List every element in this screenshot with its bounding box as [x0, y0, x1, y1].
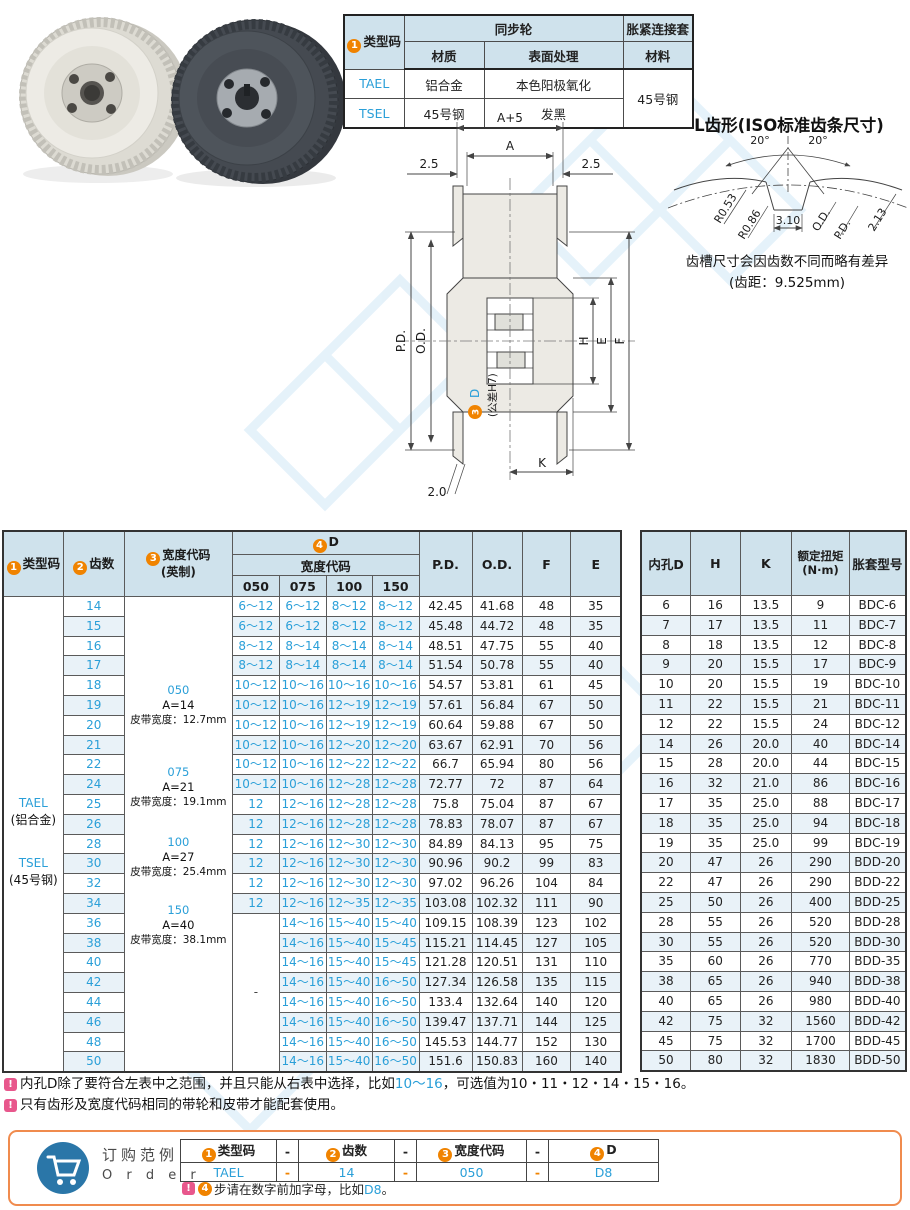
- teeth-cell: 50: [63, 1052, 124, 1072]
- header-teeth: 2齿数: [63, 531, 124, 597]
- r2-label: R0.86: [736, 207, 764, 241]
- d150-cell: 15～45: [372, 933, 419, 953]
- header-pd: P.D.: [419, 531, 472, 597]
- sleeve-model-cell: BDC-6: [849, 596, 906, 616]
- spec-row: 301212～1612～3012～3090.9690.29983: [3, 854, 621, 874]
- spec-table-right: 内孔D H K 额定扭矩(N·m) 胀套型号 61613.59BDC-67171…: [640, 530, 907, 1072]
- pd-cell: 121.28: [419, 953, 472, 973]
- note-icon: !: [182, 1182, 195, 1195]
- d075-cell: 8～14: [279, 656, 326, 676]
- teeth-cell: 36: [63, 913, 124, 933]
- d150-cell: 8～14: [372, 636, 419, 656]
- sleeve-model-cell: BDD-40: [849, 991, 906, 1011]
- d100-cell: 15～40: [326, 1012, 372, 1032]
- d075-cell: 12～16: [279, 854, 326, 874]
- h-cell: 28: [691, 754, 741, 774]
- f-cell: 127: [522, 933, 571, 953]
- d050-cell: 10～12: [232, 755, 279, 775]
- sleeve-row: 305526520BDD-30: [641, 932, 906, 952]
- pulley-aluminum: [20, 18, 188, 176]
- pd-cell: 45.48: [419, 616, 472, 636]
- sleeve-row: 163221.086BDC-16: [641, 774, 906, 794]
- e-cell: 115: [571, 973, 621, 993]
- tael-material: 铝合金: [404, 69, 484, 99]
- bore-cell: 14: [641, 734, 691, 754]
- material-subheader: 材质: [404, 42, 484, 70]
- bore-cell: 35: [641, 952, 691, 972]
- tooth-note-1: 齿槽尺寸会因齿数不同而略有差异: [664, 250, 910, 270]
- torque-cell: 44: [792, 754, 850, 774]
- d075-cell: 12～16: [279, 834, 326, 854]
- footnote-2: ! 只有齿形及宽度代码相同的带轮和皮带才能配套使用。: [4, 1095, 694, 1116]
- bore-cell: 20: [641, 853, 691, 873]
- h-cell: 20: [691, 675, 741, 695]
- tael-surface: 本色阳极氧化: [484, 69, 623, 99]
- d150-cell: 8～12: [372, 597, 419, 617]
- sleeve-row: 224726290BDD-22: [641, 873, 906, 893]
- h-cell: 20: [691, 655, 741, 675]
- bore-cell: 50: [641, 1051, 691, 1071]
- d050-merged-dash-cell: -: [232, 913, 279, 1072]
- d050-cell: 6～12: [232, 597, 279, 617]
- d075-cell: 8～14: [279, 636, 326, 656]
- d100-cell: 8～12: [326, 616, 372, 636]
- f-cell: 67: [522, 715, 571, 735]
- d075-cell: 6～12: [279, 616, 326, 636]
- h-cell: 65: [691, 972, 741, 992]
- bore-cell: 10: [641, 675, 691, 695]
- order-v4: D8: [549, 1163, 659, 1182]
- torque-cell: 520: [792, 912, 850, 932]
- h-cell: 47: [691, 853, 741, 873]
- spec-row: 4014～1615～4015～45121.28120.51131110: [3, 953, 621, 973]
- od-cell: 90.2: [472, 854, 522, 874]
- bore-cell: 42: [641, 1011, 691, 1031]
- f-cell: 48: [522, 616, 571, 636]
- k-cell: 20.0: [740, 754, 792, 774]
- sleeve-row: 122215.524BDC-12: [641, 714, 906, 734]
- order-table: 1类型码 - 2齿数 - 3宽度代码 - 4D TAEL - 14 - 050 …: [180, 1139, 659, 1182]
- table-row: TAEL 铝合金 本色阳极氧化 45号钢: [344, 69, 693, 99]
- sleeve-model-cell: BDC-11: [849, 694, 906, 714]
- d100-cell: 12～30: [326, 854, 372, 874]
- torque-cell: 9: [792, 596, 850, 616]
- sleeve-material-subheader: 材料: [623, 42, 693, 70]
- d100-cell: 15～40: [326, 992, 372, 1012]
- f-cell: 67: [522, 695, 571, 715]
- e-cell: 140: [571, 1052, 621, 1072]
- od-cell: 120.51: [472, 953, 522, 973]
- d100-cell: 8～14: [326, 636, 372, 656]
- f-cell: 144: [522, 1012, 571, 1032]
- teeth-cell: 48: [63, 1032, 124, 1052]
- sleeve-model-cell: BDC-7: [849, 615, 906, 635]
- d100-cell: 12～20: [326, 735, 372, 755]
- f-cell: 55: [522, 656, 571, 676]
- h-cell: 22: [691, 694, 741, 714]
- header-bore: 内孔D: [641, 531, 691, 596]
- d075-cell: 10～16: [279, 695, 326, 715]
- d075-cell: 12～16: [279, 814, 326, 834]
- f-cell: 131: [522, 953, 571, 973]
- spec-row: 2410～1210～1612～2812～2872.77728764: [3, 775, 621, 795]
- k-cell: 26: [740, 853, 792, 873]
- spec-row: 168～128～148～148～1448.5147.755540: [3, 636, 621, 656]
- sleeve-row: 152820.044BDC-15: [641, 754, 906, 774]
- k-cell: 15.5: [740, 655, 792, 675]
- h-cell: 35: [691, 833, 741, 853]
- spec-row: 321212～1612～3012～3097.0296.2610484: [3, 874, 621, 894]
- torque-cell: 1830: [792, 1051, 850, 1071]
- h-cell: 75: [691, 1031, 741, 1051]
- e-cell: 110: [571, 953, 621, 973]
- bore-cell: 22: [641, 873, 691, 893]
- od-cell: 41.68: [472, 597, 522, 617]
- spec-row: 178～128～148～148～1451.5450.785540: [3, 656, 621, 676]
- torque-cell: 40: [792, 734, 850, 754]
- torque-cell: 980: [792, 991, 850, 1011]
- od-cell: 56.84: [472, 695, 522, 715]
- teeth-cell: 22: [63, 755, 124, 775]
- k-cell: 13.5: [740, 615, 792, 635]
- dim-a5-label: A+5: [497, 111, 523, 125]
- pd-cell: 48.51: [419, 636, 472, 656]
- svg-text:(公差H7): (公差H7): [486, 373, 499, 417]
- d150-cell: 16～50: [372, 1012, 419, 1032]
- tooth-note-2: (齿距：9.525mm): [664, 271, 910, 291]
- torque-cell: 24: [792, 714, 850, 734]
- d150-cell: 12～19: [372, 695, 419, 715]
- width-block-150: 150A=40皮带宽度：38.1mm: [125, 903, 232, 948]
- sleeve-row: 81813.512BDC-8: [641, 635, 906, 655]
- header-075: 075: [279, 576, 326, 597]
- bore-cell: 15: [641, 754, 691, 774]
- pd-cell: 60.64: [419, 715, 472, 735]
- k-cell: 26: [740, 932, 792, 952]
- h-cell: 47: [691, 873, 741, 893]
- pd-cell: 42.45: [419, 597, 472, 617]
- d075-cell: 10～16: [279, 715, 326, 735]
- torque-cell: 400: [792, 892, 850, 912]
- bore-cell: 28: [641, 912, 691, 932]
- order-h4: 4D: [549, 1140, 659, 1163]
- torque-cell: 520: [792, 932, 850, 952]
- k-cell: 32: [740, 1051, 792, 1071]
- h-cell: 35: [691, 813, 741, 833]
- sleeve-row: 193525.099BDC-19: [641, 833, 906, 853]
- e-cell: 84: [571, 874, 621, 894]
- d075-cell: 6～12: [279, 597, 326, 617]
- sleeve-row: 102015.519BDC-10: [641, 675, 906, 695]
- d050-cell: 8～12: [232, 656, 279, 676]
- order-h1: 1类型码: [181, 1140, 277, 1163]
- sleeve-model-cell: BDD-25: [849, 892, 906, 912]
- pd-cell: 75.8: [419, 794, 472, 814]
- d050-cell: 12: [232, 794, 279, 814]
- e-cell: 40: [571, 656, 621, 676]
- bore-cell: 12: [641, 714, 691, 734]
- note-icon: !: [4, 1078, 17, 1091]
- sleeve-model-cell: BDD-22: [849, 873, 906, 893]
- sleeve-model-cell: BDD-35: [849, 952, 906, 972]
- width-block-100: 100A=27皮带宽度：25.4mm: [125, 835, 232, 880]
- e-cell: 40: [571, 636, 621, 656]
- d150-cell: 12～19: [372, 715, 419, 735]
- pd-cell: 84.89: [419, 834, 472, 854]
- torque-cell: 86: [792, 774, 850, 794]
- sleeve-row: 285526520BDD-28: [641, 912, 906, 932]
- k-cell: 26: [740, 952, 792, 972]
- torque-cell: 17: [792, 655, 850, 675]
- d150-cell: 16～50: [372, 1052, 419, 1072]
- spec-row: 341212～1612～3512～35103.08102.3211190: [3, 893, 621, 913]
- k-cell: 25.0: [740, 793, 792, 813]
- od-cell: 78.07: [472, 814, 522, 834]
- torque-cell: 11: [792, 615, 850, 635]
- h-cell: 55: [691, 932, 741, 952]
- k-cell: 26: [740, 972, 792, 992]
- f-cell: 61: [522, 676, 571, 696]
- badge-4: 4: [313, 539, 327, 553]
- f-cell: 111: [522, 893, 571, 913]
- d150-cell: 12～28: [372, 814, 419, 834]
- k-cell: 25.0: [740, 813, 792, 833]
- f-cell: 104: [522, 874, 571, 894]
- bore-cell: 40: [641, 991, 691, 1011]
- d050-cell: 10～12: [232, 775, 279, 795]
- od-cell: 102.32: [472, 893, 522, 913]
- d150-cell: 16～50: [372, 973, 419, 993]
- f-cell: 87: [522, 794, 571, 814]
- h-cell: 50: [691, 892, 741, 912]
- teeth-cell: 15: [63, 616, 124, 636]
- e-cell: 125: [571, 1012, 621, 1032]
- header-f: F: [522, 531, 571, 597]
- sleeve-model-cell: BDD-50: [849, 1051, 906, 1071]
- catalog-page: { "colors":{"blue":"#2a9fd8","orange":"#…: [0, 0, 910, 1210]
- od-cell: 144.77: [472, 1032, 522, 1052]
- pd-cell: 127.34: [419, 973, 472, 993]
- dim-20-label: 2.0: [427, 485, 446, 499]
- d150-cell: 12～20: [372, 735, 419, 755]
- e-cell: 35: [571, 616, 621, 636]
- h-cell: 60: [691, 952, 741, 972]
- spec-row: 4614～1615～4016～50139.47137.71144125: [3, 1012, 621, 1032]
- f-cell: 87: [522, 814, 571, 834]
- d150-cell: 12～28: [372, 794, 419, 814]
- bore-cell: 38: [641, 972, 691, 992]
- order-example-box: 订购范例 O r d e r 1类型码 - 2齿数 - 3宽度代码 - 4D T…: [8, 1130, 902, 1206]
- e-cell: 83: [571, 854, 621, 874]
- od-cell: 137.71: [472, 1012, 522, 1032]
- od-label: O.D.: [810, 207, 834, 234]
- bore-cell: 45: [641, 1031, 691, 1051]
- svg-text:3: 3: [472, 409, 482, 415]
- header-torque: 额定扭矩(N·m): [792, 531, 850, 596]
- e-cell: 56: [571, 755, 621, 775]
- e-cell: 35: [571, 597, 621, 617]
- e-cell: 90: [571, 893, 621, 913]
- teeth-cell: 30: [63, 854, 124, 874]
- bore-cell: 19: [641, 833, 691, 853]
- e-cell: 67: [571, 794, 621, 814]
- bore-cell: 11: [641, 694, 691, 714]
- e-cell: 56: [571, 735, 621, 755]
- k-cell: 32: [740, 1031, 792, 1051]
- e-cell: 50: [571, 715, 621, 735]
- d100-cell: 12～30: [326, 874, 372, 894]
- dim-h-label: H: [577, 336, 591, 345]
- spec-row: TAEL(铝合金)TSEL(45号钢)14050A=14皮带宽度：12.7mm0…: [3, 597, 621, 617]
- f-cell: 95: [522, 834, 571, 854]
- d050-cell: 10～12: [232, 676, 279, 696]
- d100-cell: 15～40: [326, 1052, 372, 1072]
- teeth-cell: 28: [63, 834, 124, 854]
- d050-cell: 6～12: [232, 616, 279, 636]
- e-cell: 120: [571, 992, 621, 1012]
- od-cell: 114.45: [472, 933, 522, 953]
- header-od: O.D.: [472, 531, 522, 597]
- d050-cell: 8～12: [232, 636, 279, 656]
- sleeve-row: 173525.088BDC-17: [641, 793, 906, 813]
- dim-e-label: E: [595, 337, 609, 345]
- bore-cell: 17: [641, 793, 691, 813]
- d100-cell: 15～40: [326, 1032, 372, 1052]
- d050-cell: 10～12: [232, 735, 279, 755]
- spec-row: 5014～1615～4016～50151.6150.83160140: [3, 1052, 621, 1072]
- sleeve-row: 112215.521BDC-11: [641, 694, 906, 714]
- e-cell: 102: [571, 913, 621, 933]
- d050-cell: 10～12: [232, 695, 279, 715]
- r1-label: R0.53: [712, 191, 740, 225]
- dim-f-label: F: [613, 337, 627, 344]
- d075-cell: 10～16: [279, 676, 326, 696]
- k-cell: 15.5: [740, 694, 792, 714]
- sleeve-row: 142620.040BDC-14: [641, 734, 906, 754]
- header-sleeve-model: 胀套型号: [849, 531, 906, 596]
- h-cell: 32: [691, 774, 741, 794]
- width-block-075: 075A=21皮带宽度：19.1mm: [125, 765, 232, 810]
- spec-row: 261212～1612～2812～2878.8378.078767: [3, 814, 621, 834]
- badge-1: 1: [7, 561, 21, 575]
- sleeve-model-cell: BDC-9: [849, 655, 906, 675]
- dim-od-label: O.D.: [414, 328, 428, 354]
- f-cell: 123: [522, 913, 571, 933]
- pd-cell: 51.54: [419, 656, 472, 676]
- d075-cell: 12～16: [279, 893, 326, 913]
- torque-cell: 12: [792, 635, 850, 655]
- d150-cell: 12～28: [372, 775, 419, 795]
- sleeve-row: 386526940BDD-38: [641, 972, 906, 992]
- svg-text:D: D: [468, 389, 482, 398]
- h-cell: 55: [691, 912, 741, 932]
- sleeve-row: 356026770BDD-35: [641, 952, 906, 972]
- e-cell: 105: [571, 933, 621, 953]
- h-cell: 17: [691, 615, 741, 635]
- bore-cell: 16: [641, 774, 691, 794]
- product-photo: [8, 6, 348, 196]
- pd-cell: 139.47: [419, 1012, 472, 1032]
- f-cell: 152: [522, 1032, 571, 1052]
- width-block-050: 050A=14皮带宽度：12.7mm: [125, 683, 232, 728]
- header-e: E: [571, 531, 621, 597]
- d075-cell: 12～16: [279, 874, 326, 894]
- od-cell: 59.88: [472, 715, 522, 735]
- header-width-code: 3宽度代码(英制): [124, 531, 232, 597]
- d100-cell: 12～22: [326, 755, 372, 775]
- spec-row: 4414～1615～4016～50133.4132.64140120: [3, 992, 621, 1012]
- badge-3: 3: [146, 552, 160, 566]
- k-cell: 15.5: [740, 714, 792, 734]
- d150-cell: 12～35: [372, 893, 419, 913]
- teeth-cell: 34: [63, 893, 124, 913]
- d100-cell: 10～16: [326, 676, 372, 696]
- header-100: 100: [326, 576, 372, 597]
- sleeve-model-cell: BDD-38: [849, 972, 906, 992]
- pd-cell: 72.77: [419, 775, 472, 795]
- type-code-tael: TAEL: [344, 69, 404, 99]
- dim-pd-label: P.D.: [394, 330, 408, 352]
- torque-cell: 770: [792, 952, 850, 972]
- type-code-header: 1类型码: [344, 15, 404, 69]
- h-cell: 35: [691, 793, 741, 813]
- bore-cell: 18: [641, 813, 691, 833]
- d150-cell: 10～16: [372, 676, 419, 696]
- bore-cell: 6: [641, 596, 691, 616]
- cart-icon: [34, 1139, 92, 1197]
- pd-cell: 103.08: [419, 893, 472, 913]
- sleeve-model-cell: BDD-30: [849, 932, 906, 952]
- f-cell: 70: [522, 735, 571, 755]
- d075-cell: 10～16: [279, 775, 326, 795]
- pd-cell: 54.57: [419, 676, 472, 696]
- torque-cell: 940: [792, 972, 850, 992]
- spec-row: 281212～1612～3012～3084.8984.139575: [3, 834, 621, 854]
- dim-25-right-label: 2.5: [581, 157, 600, 171]
- pd-label: P.D.: [832, 217, 854, 241]
- order-h2: 2齿数: [299, 1140, 395, 1163]
- sleeve-row: 406526980BDD-40: [641, 991, 906, 1011]
- h-cell: 18: [691, 635, 741, 655]
- d075-cell: 10～16: [279, 755, 326, 775]
- od-cell: 96.26: [472, 874, 522, 894]
- teeth-cell: 46: [63, 1012, 124, 1032]
- f-cell: 135: [522, 973, 571, 993]
- k-cell: 20.0: [740, 734, 792, 754]
- spec-row: 251212～1612～2812～2875.875.048767: [3, 794, 621, 814]
- d100-cell: 12～28: [326, 814, 372, 834]
- bore-cell: 30: [641, 932, 691, 952]
- k-cell: 13.5: [740, 635, 792, 655]
- torque-cell: 94: [792, 813, 850, 833]
- d050-cell: 10～12: [232, 715, 279, 735]
- e-cell: 75: [571, 834, 621, 854]
- pd-cell: 63.67: [419, 735, 472, 755]
- bore-cell: 7: [641, 615, 691, 635]
- k-cell: 21.0: [740, 774, 792, 794]
- torque-cell: 1700: [792, 1031, 850, 1051]
- sleeve-model-cell: BDC-10: [849, 675, 906, 695]
- k-cell: 32: [740, 1011, 792, 1031]
- torque-cell: 1560: [792, 1011, 850, 1031]
- sleeve-row: 5080321830BDD-50: [641, 1051, 906, 1071]
- footnotes: ! 内孔D除了要符合左表中之范围，并且只能从右表中选择，比如10～16，可选值为…: [4, 1074, 694, 1116]
- h-cell: 22: [691, 714, 741, 734]
- dim-25-left-label: 2.5: [419, 157, 438, 171]
- pd-cell: 97.02: [419, 874, 472, 894]
- torque-cell: 99: [792, 833, 850, 853]
- order-note: ! 4 步请在数字前加字母，比如D8。: [182, 1179, 394, 1198]
